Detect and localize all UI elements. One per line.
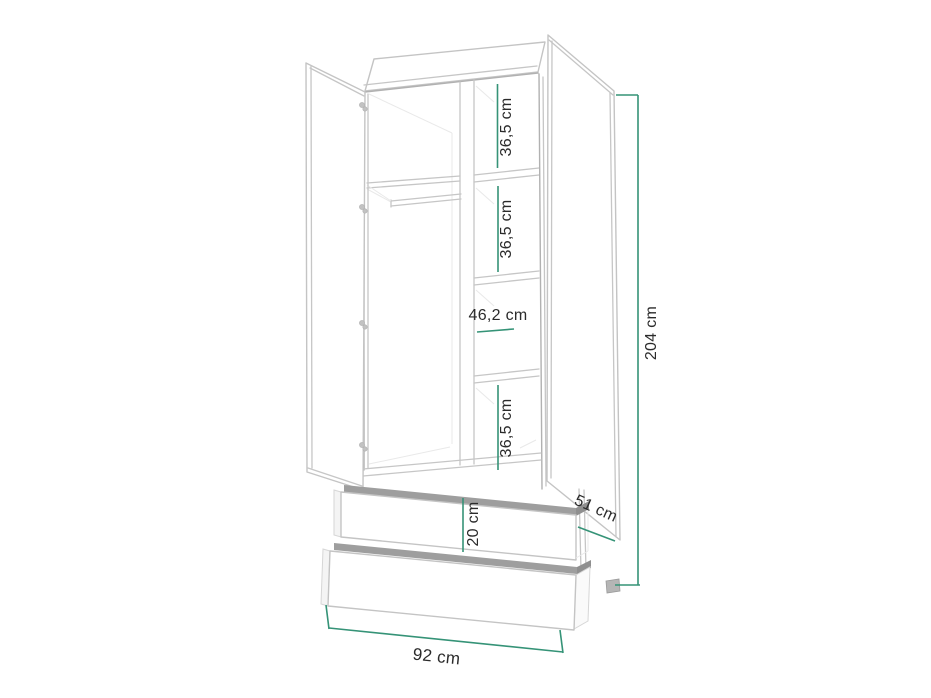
drawer-2-front [328, 551, 576, 630]
left-door [306, 63, 365, 490]
dimension-label: 36,5 cm [498, 97, 515, 156]
dimension-label: 36,5 cm [498, 199, 515, 258]
dim-drawer-height: 20 cm [463, 498, 482, 552]
dim-total-height: 204 cm [615, 95, 660, 585]
dimension-tick [326, 605, 329, 629]
dim-compartment-3-width: 46,2 cm [468, 307, 527, 332]
clothes-rail [367, 185, 461, 207]
carcass [363, 42, 546, 489]
right-door [547, 35, 620, 540]
dim-compartment-1: 36,5 cm [498, 84, 516, 168]
front-frame [364, 74, 546, 489]
dim-compartment-4: 36,5 cm [498, 385, 515, 470]
dimension-label: 36,5 cm [498, 398, 515, 457]
dimension-tick [560, 630, 563, 653]
dim-compartment-2: 36,5 cm [498, 186, 515, 272]
dimension-label: 204 cm [643, 306, 660, 360]
dimension-label: 46,2 cm [468, 307, 527, 324]
wardrobe-diagram-canvas: 36,5 cm 36,5 cm 46,2 cm 36,5 cm 20 cm 20… [0, 0, 931, 698]
foot-back [606, 579, 620, 593]
wardrobe-diagram: 36,5 cm 36,5 cm 46,2 cm 36,5 cm 20 cm 20… [0, 0, 931, 698]
top-panel [365, 42, 545, 91]
dimension-label: 92 cm [412, 645, 462, 669]
dimension-line [477, 329, 514, 332]
center-divider [460, 80, 474, 465]
dimension-label: 20 cm [465, 501, 482, 546]
